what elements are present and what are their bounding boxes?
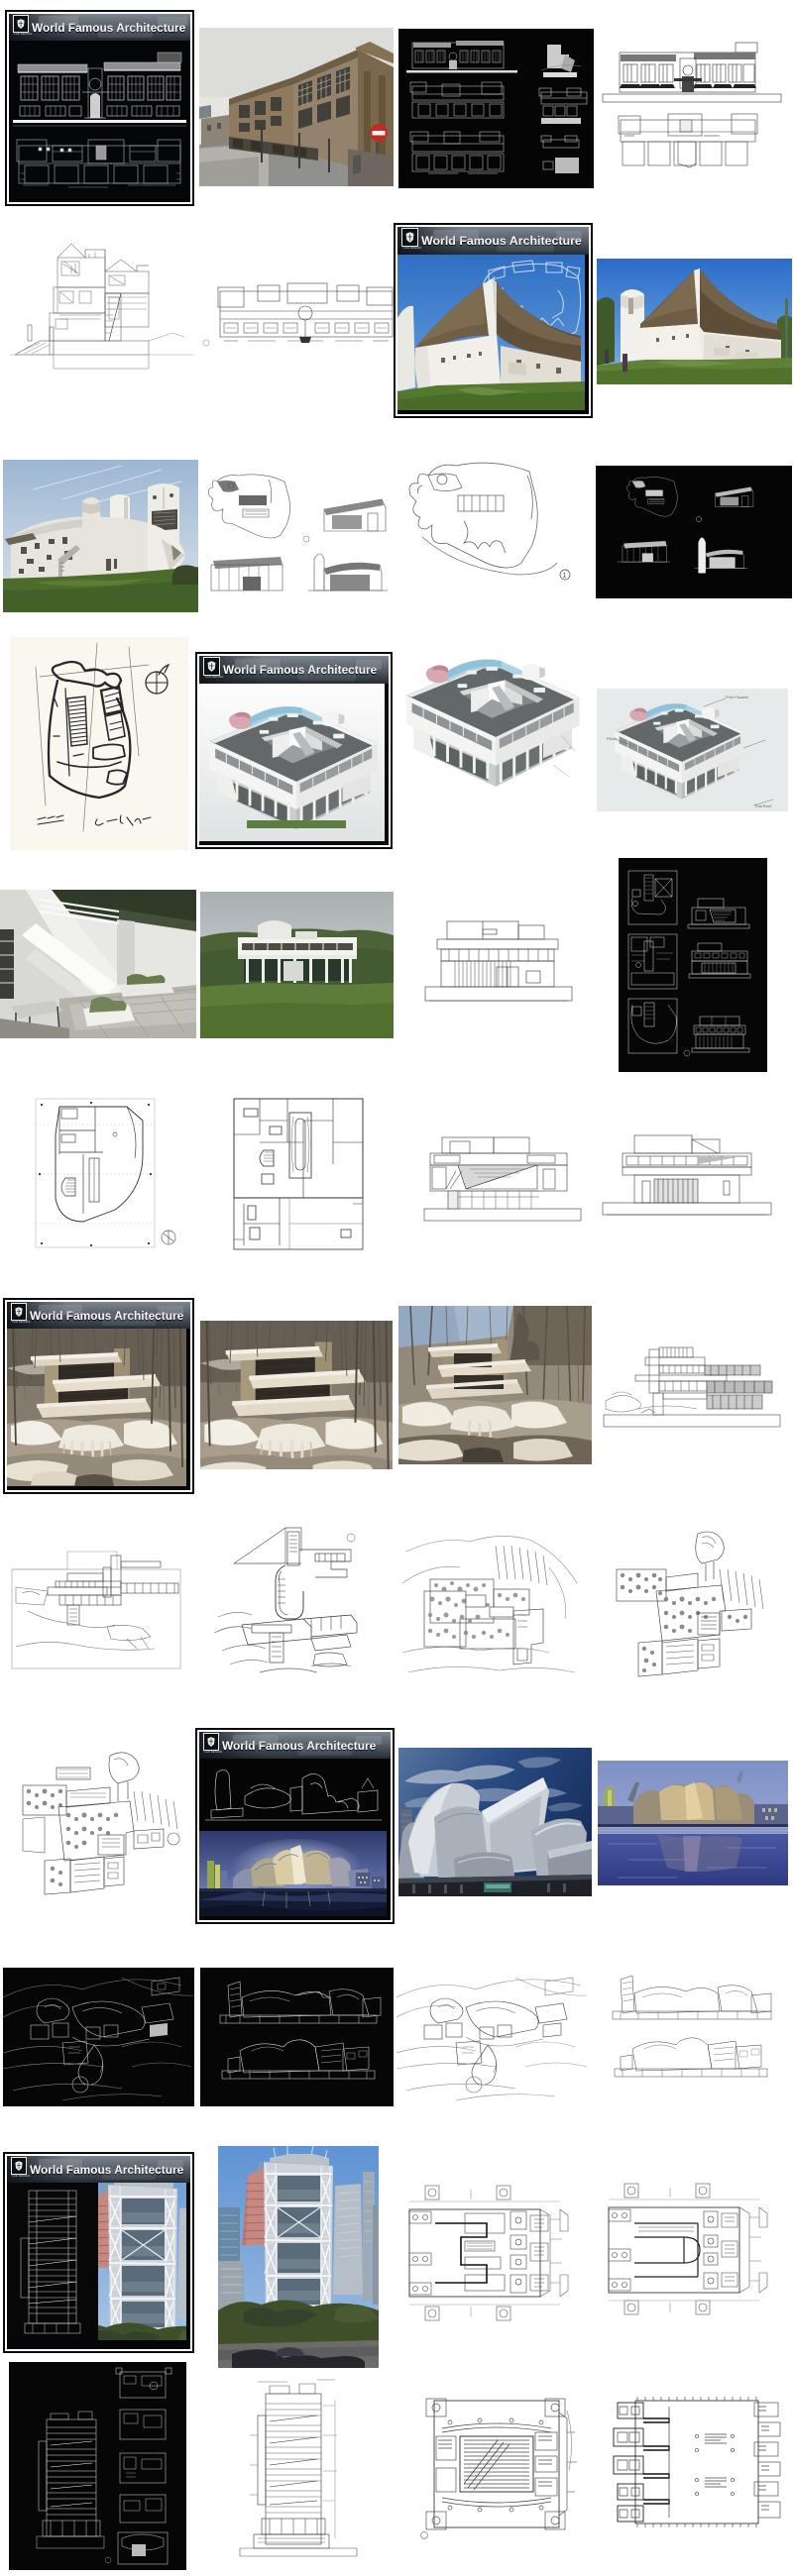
svg-text:Pilotis: Pilotis — [607, 736, 618, 741]
svg-text:Flat Roof: Flat Roof — [755, 804, 772, 808]
svg-text:Free Facade: Free Facade — [726, 695, 748, 699]
svg-text:1: 1 — [563, 573, 567, 580]
